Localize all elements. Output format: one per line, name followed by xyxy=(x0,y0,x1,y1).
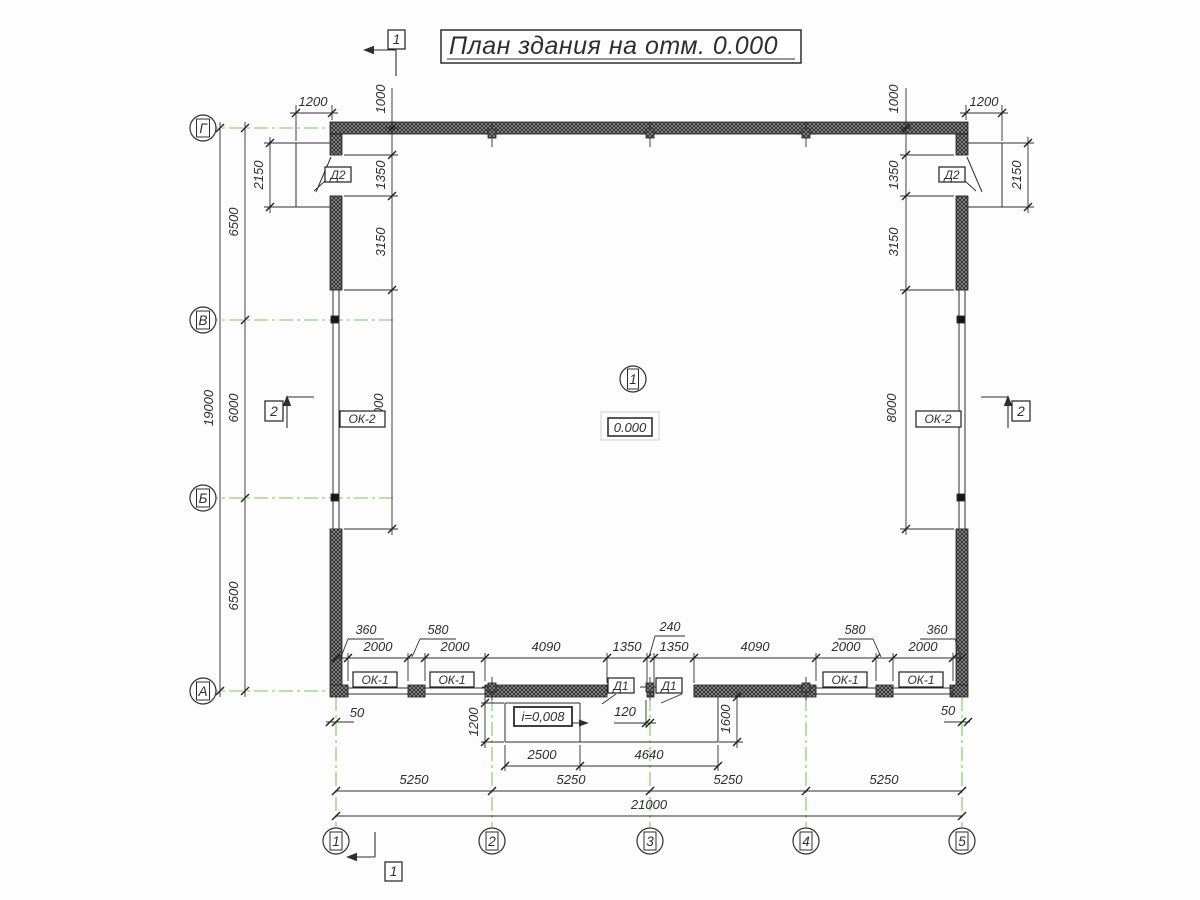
dim-side-right-1: 1350 xyxy=(886,160,901,190)
dim-pier-3: 580 xyxy=(845,623,866,637)
tag-ok2: ОК-2 xyxy=(924,412,951,426)
section-label-1-bottom: 1 xyxy=(390,864,398,879)
tag-ok1: ОК-1 xyxy=(831,673,858,687)
dim-side-left-0: 1000 xyxy=(373,84,388,114)
column-square xyxy=(646,683,654,692)
axis-col-label: 4 xyxy=(802,834,810,849)
tag-ok1: ОК-1 xyxy=(361,673,388,687)
door-leaf-right xyxy=(967,157,982,192)
elevation-value: 0.000 xyxy=(614,420,647,435)
tag-d2: Д2 xyxy=(328,168,345,182)
dim-pier-2: 240 xyxy=(659,620,681,634)
dim-row-span-1: 6000 xyxy=(226,393,241,423)
section-label-1-top: 1 xyxy=(393,32,401,47)
dim-bottom-6: 2000 xyxy=(831,639,862,654)
door-swing-right xyxy=(966,143,1002,207)
entrance-platform: i=0,008 xyxy=(505,697,718,742)
dim-landing-width: 1600 xyxy=(718,704,733,734)
wall-bottom-3 xyxy=(485,685,607,697)
dim-offset-right: 50 xyxy=(941,703,956,718)
tag-ok1: ОК-1 xyxy=(438,673,465,687)
mullion-marker xyxy=(957,316,965,323)
axis-row-label: В xyxy=(198,313,207,328)
room-annotations: 1 0.000 xyxy=(601,366,659,440)
floor-plan-svg: i=0,008 19000 6500 6000 6500 2150 1000 1… xyxy=(0,0,1200,900)
slope-label: i=0,008 xyxy=(521,709,565,724)
dim-bottom-4: 1350 xyxy=(660,639,690,654)
room-number: 1 xyxy=(629,372,637,387)
dim-row-span-0: 6500 xyxy=(226,207,241,237)
tag-ok1: ОК-1 xyxy=(907,673,934,687)
dim-pier-half: 120 xyxy=(614,704,636,719)
axis-col-label: 1 xyxy=(332,834,340,849)
dim-total-width: 21000 xyxy=(630,797,668,812)
dim-swing-width-left: 1200 xyxy=(299,94,329,109)
mullion-marker xyxy=(957,494,965,501)
dim-landing-length: 4640 xyxy=(635,747,665,762)
column-square xyxy=(488,129,496,138)
dim-side-left-2: 3150 xyxy=(373,227,388,257)
wall-left-2 xyxy=(330,196,342,290)
dim-swing-width-right: 1200 xyxy=(970,94,1000,109)
wall-bottom-1 xyxy=(330,685,348,697)
mullion-marker xyxy=(331,316,339,323)
dim-bottom-2: 4090 xyxy=(532,639,562,654)
dim-swing-height-right: 2150 xyxy=(1009,160,1024,191)
mullion-marker xyxy=(331,494,339,501)
tag-d2: Д2 xyxy=(942,168,959,182)
column-square xyxy=(802,129,810,138)
axis-row-label: А xyxy=(197,684,207,699)
wall-bottom-2 xyxy=(408,685,425,697)
dim-bottom-3: 1350 xyxy=(613,639,643,654)
axis-col-label: 3 xyxy=(646,834,654,849)
axis-col-label: 5 xyxy=(958,834,966,849)
dim-bottom-5: 4090 xyxy=(741,639,771,654)
dim-bottom-0: 2000 xyxy=(363,639,394,654)
axis-bubbles-cols: 1 2 3 4 5 xyxy=(323,828,975,854)
axis-row-label: Б xyxy=(199,491,208,506)
slope-arrow-head xyxy=(579,720,589,727)
drawing-title: План здания на отм. 0.000 xyxy=(449,32,778,60)
dimension-texts: 19000 6500 6000 6500 2150 1000 1350 3150… xyxy=(201,84,1024,812)
dim-ramp-width: 1200 xyxy=(466,707,481,737)
pier-dim-leaders xyxy=(341,636,961,657)
dim-col-span-3: 5250 xyxy=(870,772,900,787)
dim-bottom-1: 2000 xyxy=(440,639,471,654)
dim-col-span-0: 5250 xyxy=(400,772,430,787)
dim-bottom-7: 2000 xyxy=(908,639,939,654)
dim-col-span-2: 5250 xyxy=(714,772,744,787)
wall-left-1 xyxy=(330,134,342,155)
dim-pier-0: 360 xyxy=(356,623,377,637)
section-label-2-left: 2 xyxy=(269,404,278,419)
tag-ok2: ОК-2 xyxy=(348,412,375,426)
column-square xyxy=(488,683,496,692)
dim-col-span-1: 5250 xyxy=(557,772,587,787)
dim-pier-1: 580 xyxy=(428,623,449,637)
tag-d1: Д1 xyxy=(659,679,676,693)
section-label-2-right: 2 xyxy=(1016,404,1025,419)
column-square xyxy=(802,683,810,692)
title-block: План здания на отм. 0.000 xyxy=(441,30,801,63)
section-arrow xyxy=(363,46,374,54)
wall-bottom-5 xyxy=(876,685,893,697)
dim-side-left-1: 1350 xyxy=(373,160,388,190)
dim-offset-left: 50 xyxy=(350,705,365,720)
dim-swing-height-left: 2150 xyxy=(251,160,266,191)
walls xyxy=(330,122,968,697)
dim-total-height: 19000 xyxy=(201,389,216,426)
column-square xyxy=(646,129,654,138)
tag-leaders xyxy=(314,181,976,704)
dim-row-span-2: 6500 xyxy=(226,581,241,611)
dim-side-right-2: 3150 xyxy=(886,227,901,257)
tag-d1: Д1 xyxy=(611,679,628,693)
dim-ramp-length: 2500 xyxy=(527,747,558,762)
dim-pier-4: 360 xyxy=(927,623,948,637)
drawing-canvas: i=0,008 19000 6500 6000 6500 2150 1000 1… xyxy=(0,0,1200,900)
dim-side-right-0: 1000 xyxy=(886,84,901,114)
dim-side-right-3: 8000 xyxy=(884,393,899,423)
wall-right-2 xyxy=(956,196,968,290)
axis-col-label: 2 xyxy=(487,834,496,849)
section-arrow xyxy=(346,853,357,861)
wall-right-1 xyxy=(956,134,968,155)
